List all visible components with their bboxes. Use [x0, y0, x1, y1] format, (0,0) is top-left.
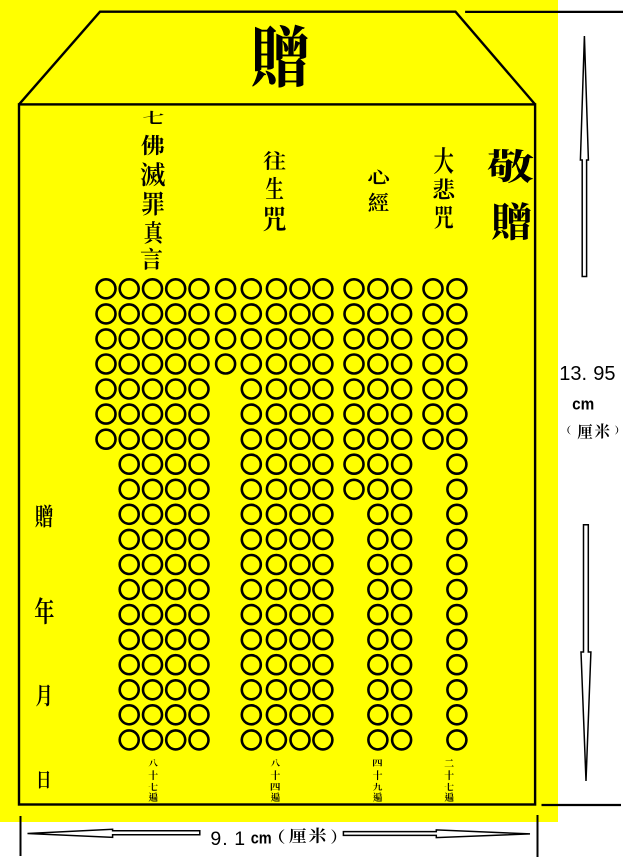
svg-text:95: 95: [593, 363, 615, 385]
svg-text:1: 1: [234, 828, 245, 850]
svg-text:cm: cm: [572, 395, 594, 414]
svg-text:cm: cm: [251, 829, 272, 847]
svg-text:13.: 13.: [559, 363, 587, 385]
svg-text:9: 9: [210, 828, 221, 850]
svg-text:.: .: [222, 828, 227, 850]
